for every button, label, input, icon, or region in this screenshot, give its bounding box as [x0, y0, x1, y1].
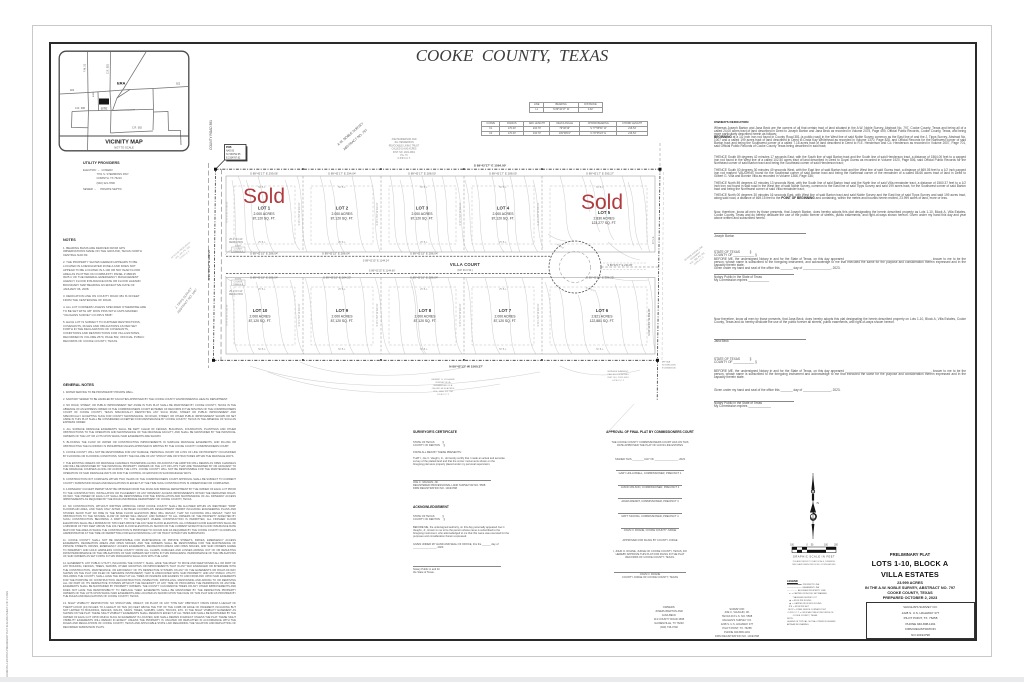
- svg-text:25' B.L.: 25' B.L.: [499, 289, 507, 291]
- svg-text:2.000 ACRES: 2.000 ACRES: [250, 314, 272, 318]
- svg-text:50' B.L.: 50' B.L.: [258, 349, 266, 351]
- svg-text:2.000 ACRES: 2.000 ACRES: [254, 212, 276, 216]
- svg-text:SIGHT: SIGHT: [235, 246, 242, 248]
- svg-text:87,120 SQ. FT.: 87,120 SQ. FT.: [492, 217, 515, 221]
- svg-text:LOT 6: LOT 6: [596, 308, 609, 313]
- svg-text:50' B.L.: 50' B.L.: [258, 187, 266, 189]
- svg-text:S 89°42'15" E 286.25': S 89°42'15" E 286.25': [586, 276, 614, 280]
- svg-text:2.000 ACRES: 2.000 ACRES: [332, 314, 354, 318]
- svg-text:N 00°17'43" E 240.00': N 00°17'43" E 240.00': [227, 304, 229, 326]
- svg-text:25' B.L.: 25' B.L.: [258, 242, 266, 244]
- svg-text:S 89°42'17" E 294.04': S 89°42'17" E 294.04': [328, 172, 356, 176]
- svg-text:VOL. 1366, PG. 336: VOL. 1366, PG. 336: [433, 391, 453, 393]
- svg-text:87,120 SQ. FT.: 87,120 SQ. FT.: [411, 217, 434, 221]
- svg-text:S 00°17'43" W 290.00': S 00°17'43" W 290.00': [299, 303, 301, 326]
- svg-text:BRINKER EARNEST: BRINKER EARNEST: [608, 370, 629, 373]
- svg-text:25' B.L.: 25' B.L.: [420, 242, 428, 244]
- svg-text:25' B.L.: 25' B.L.: [420, 289, 428, 291]
- svg-text:POB: POB: [226, 146, 232, 149]
- svg-text:LOT 3: LOT 3: [416, 206, 429, 211]
- svg-text:2.000 ACRES: 2.000 ACRES: [415, 314, 437, 318]
- svg-text:DEDICATION: DEDICATION: [229, 293, 243, 296]
- svg-text:S 89°42'15" E 1144.24': S 89°42'15" E 1144.24': [363, 258, 390, 262]
- svg-text:S 89°42'15" E 286.04': S 89°42'15" E 286.04': [410, 276, 438, 280]
- svg-text:(60' R.O.W.): (60' R.O.W.): [457, 268, 472, 272]
- svg-text:COUNTY: COUNTY: [234, 248, 243, 250]
- svg-text:25' B.L.: 25' B.L.: [338, 242, 346, 244]
- svg-text:S 89°42'15" E 286.04': S 89°42'15" E 286.04': [410, 252, 438, 256]
- svg-text:R=60.0': R=60.0': [556, 244, 564, 250]
- svg-text:N 00°30'49" W 669.05': N 00°30'49" W 669.05': [647, 308, 651, 335]
- svg-text:N 89°42'13" W 1560.37': N 89°42'13" W 1560.37': [449, 364, 483, 368]
- svg-text:IRF 36A: IRF 36A: [662, 361, 671, 364]
- svg-text:S 89°42'15" E 286.04': S 89°42'15" E 286.04': [322, 252, 350, 256]
- svg-text:87,120 SQ. FT.: 87,120 SQ. FT.: [249, 319, 272, 323]
- svg-text:S 89°42'15" E 284.23': S 89°42'15" E 284.23': [323, 276, 351, 280]
- svg-text:S 89°42'17" E 288.00': S 89°42'17" E 288.00': [408, 172, 436, 176]
- svg-text:DEDICATION: DEDICATION: [229, 241, 243, 244]
- svg-text:LOT 5: LOT 5: [598, 210, 611, 215]
- svg-text:O.P.R.C.C.T.: O.P.R.C.C.T.: [612, 380, 625, 382]
- svg-text:87,120 SQ. FT.: 87,120 SQ. FT.: [414, 319, 437, 323]
- svg-text:123,277 SQ. FT.: 123,277 SQ. FT.: [592, 221, 617, 225]
- svg-text:LOT 9: LOT 9: [336, 308, 349, 313]
- svg-text:S 00°17'43" W 290.00': S 00°17'43" W 290.00': [377, 303, 379, 326]
- svg-text:N 00°17'43" E 240.00': N 00°17'43" E 240.00': [227, 201, 229, 223]
- svg-text:S 00°17'43" W 290.00': S 00°17'43" W 290.00': [538, 303, 540, 326]
- svg-text:50' B.L.: 50' B.L.: [499, 187, 507, 189]
- svg-text:INST. NO. 2019-1034: INST. NO. 2019-1034: [608, 377, 630, 379]
- svg-text:CALLED 88.66 ACRES: CALLED 88.66 ACRES: [432, 387, 455, 390]
- svg-text:50' B.L.: 50' B.L.: [420, 187, 428, 189]
- svg-text:COUNTY: COUNTY: [234, 281, 243, 283]
- svg-text:CALLED 114.80 ACRES: CALLED 114.80 ACRES: [392, 148, 417, 151]
- svg-text:S 00°17'43" W 290.00': S 00°17'43" W 290.00': [299, 202, 301, 225]
- svg-text:25'-2' R.O.W.: 25'-2' R.O.W.: [229, 239, 243, 241]
- svg-text:INST. NO. 2021-4861: INST. NO. 2021-4861: [393, 152, 416, 154]
- svg-text:REVOCABLE LIVING TRUST: REVOCABLE LIVING TRUST: [389, 144, 420, 147]
- svg-text:2.000 ACRES: 2.000 ACRES: [412, 212, 434, 216]
- svg-text:NAD 83: NAD 83: [226, 150, 235, 153]
- svg-text:S 00°17'43" W 290.00': S 00°17'43" W 290.00': [377, 202, 379, 225]
- svg-text:S 89°42'17" E 299.06': S 89°42'17" E 299.06': [250, 172, 278, 176]
- svg-text:2.821 ACRES: 2.821 ACRES: [592, 314, 614, 318]
- svg-text:50' B.L.: 50' B.L.: [499, 349, 507, 351]
- svg-text:N:7239143.85: N:7239143.85: [662, 365, 677, 367]
- svg-text:2.000 ACRES: 2.000 ACRES: [495, 314, 517, 318]
- svg-text:LOT 4: LOT 4: [497, 206, 510, 211]
- svg-text:S 89°42'17" E 1564.00': S 89°42'17" E 1564.00': [474, 164, 507, 168]
- svg-text:E:2334787.82: E:2334787.82: [226, 157, 241, 159]
- svg-text:S 89°42'15" E 1144.66': S 89°42'15" E 1144.66': [369, 269, 396, 273]
- svg-text:JILL HENDERSON: JILL HENDERSON: [394, 142, 414, 144]
- svg-text:S 89°42'17" E 234.05': S 89°42'17" E 234.05': [607, 263, 633, 267]
- svg-text:CALLED 5.00 ACRES: CALLED 5.00 ACRES: [607, 373, 629, 376]
- svg-text:S 00°17'43" W 290.00': S 00°17'43" W 290.00': [538, 202, 540, 225]
- svg-text:25'-2' R.O.W.: 25'-2' R.O.W.: [229, 291, 243, 293]
- svg-text:50' B.L.: 50' B.L.: [596, 187, 604, 189]
- svg-text:122,881 SQ. FT.: 122,881 SQ. FT.: [590, 319, 615, 323]
- svg-text:S 89°42'15" E 286.04': S 89°42'15" E 286.04': [250, 252, 278, 256]
- svg-text:50' B.L.: 50' B.L.: [420, 349, 428, 351]
- svg-text:N 00°30'16" E 669.15': N 00°30'16" E 669.15': [207, 249, 211, 280]
- svg-text:N:7239792.95: N:7239792.95: [226, 154, 241, 156]
- svg-text:50' B.L.: 50' B.L.: [338, 349, 346, 351]
- svg-text:LOT 7: LOT 7: [499, 308, 512, 313]
- svg-text:87,120 SQ. FT.: 87,120 SQ. FT.: [494, 319, 517, 323]
- svg-text:2.830 ACRES: 2.830 ACRES: [594, 216, 616, 220]
- svg-text:LOT 2: LOT 2: [336, 206, 349, 211]
- svg-text:50' B.L.: 50' B.L.: [338, 187, 346, 189]
- svg-text:LOT 10: LOT 10: [253, 308, 268, 313]
- svg-text:S 89°42'15" E 286.04': S 89°42'15" E 286.04': [250, 276, 278, 280]
- svg-text:COUNTY ROAD 381: COUNTY ROAD 381: [209, 120, 213, 150]
- svg-text:O.P.R.C.C.T.: O.P.R.C.C.T.: [437, 394, 450, 396]
- svg-text:50' B.L.: 50' B.L.: [596, 349, 604, 351]
- svg-text:87,120 SQ. FT.: 87,120 SQ. FT.: [331, 319, 354, 323]
- svg-text:REMAINDER OF A: REMAINDER OF A: [434, 384, 453, 387]
- svg-text:20' U.E.: 20' U.E.: [653, 236, 655, 244]
- svg-text:O.P.R.C.C.T.: O.P.R.C.C.T.: [398, 158, 411, 160]
- svg-text:25' B.L.: 25' B.L.: [258, 289, 266, 291]
- svg-text:PG. 73: PG. 73: [400, 155, 408, 157]
- svg-text:S 00°17'43" W 290.00': S 00°17'43" W 290.00': [460, 202, 462, 225]
- svg-text:LOT 1: LOT 1: [258, 206, 271, 211]
- svg-text:2.000 ACRES: 2.000 ACRES: [493, 212, 515, 216]
- svg-text:LOT 8: LOT 8: [419, 308, 432, 313]
- svg-text:GILBERT G. VILLA AND: GILBERT G. VILLA AND: [431, 378, 455, 381]
- svg-text:S 89°42'17" E 288.00': S 89°42'17" E 288.00': [489, 172, 517, 176]
- svg-text:JOE HENDERSON AND: JOE HENDERSON AND: [391, 138, 416, 141]
- svg-text:E:2336349.06: E:2336349.06: [662, 368, 676, 370]
- svg-text:S 89°42'17" E 395.27': S 89°42'17" E 395.27': [586, 172, 614, 176]
- svg-text:25' B.L.: 25' B.L.: [338, 289, 346, 291]
- svg-text:87,120 SQ. FT.: 87,120 SQ. FT.: [331, 217, 354, 221]
- svg-text:2.000 ACRES: 2.000 ACRES: [332, 212, 354, 216]
- svg-text:87,120 SQ. FT.: 87,120 SQ. FT.: [253, 217, 276, 221]
- svg-text:BONNIE VILLA: BONNIE VILLA: [436, 381, 451, 384]
- svg-text:S 00°17'43" W 290.00': S 00°17'43" W 290.00': [460, 303, 462, 326]
- svg-text:VILLA COURT: VILLA COURT: [450, 262, 480, 267]
- svg-text:SIGHT: SIGHT: [235, 279, 242, 281]
- svg-text:25' B.L.: 25' B.L.: [499, 242, 507, 244]
